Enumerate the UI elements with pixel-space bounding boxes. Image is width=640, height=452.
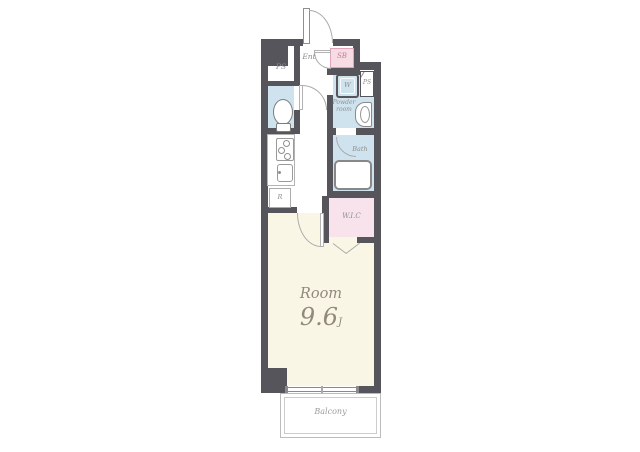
room-size-label: 9.6J: [268, 304, 374, 330]
wall-segment: [261, 39, 303, 46]
stove-burner-icon: [284, 153, 291, 160]
washer-label: W: [336, 82, 359, 89]
stove-burner-icon: [283, 140, 290, 147]
toilet-door-swing-arc: [302, 85, 327, 110]
pipe-space-right-label: PS: [360, 80, 374, 87]
wall-segment: [327, 128, 336, 135]
wall-segment: [374, 62, 381, 393]
toilet-base-icon: [276, 123, 291, 132]
basin-bowl-icon: [360, 106, 370, 123]
wic-label: W.I.C: [329, 213, 374, 221]
wall-segment: [294, 46, 300, 86]
wall-segment: [261, 81, 300, 86]
wall-segment: [357, 237, 381, 243]
window-end-cap: [285, 386, 288, 393]
wall-segment: [261, 39, 268, 393]
window-end-cap: [356, 386, 359, 393]
bathtub-icon: [334, 160, 372, 190]
room-size-unit: J: [338, 317, 342, 328]
powder-room-label-line2: room: [332, 107, 356, 114]
room-label: Room: [268, 287, 374, 303]
stove-burner-icon: [278, 147, 285, 154]
entrance-label: Ent: [298, 53, 320, 61]
structural-pillar: [261, 368, 287, 393]
bath-label: Bath: [348, 146, 372, 153]
room-size-value: 9.6: [300, 303, 338, 331]
wash-basin-icon: [355, 102, 372, 127]
entrance-door-swing-arc: [309, 10, 333, 43]
wall-segment: [356, 128, 381, 135]
toilet-bowl-icon: [273, 99, 293, 125]
floor-plan: SB PS Ent W PS Powder room Bath R W.I.C …: [0, 0, 640, 452]
wall-segment: [327, 191, 381, 198]
window-center-stile: [321, 386, 323, 393]
balcony-label: Balcony: [280, 408, 381, 417]
shoe-box-label: SB: [330, 53, 354, 61]
faucet-icon: [278, 171, 281, 174]
pipe-space-left-label: PS: [268, 63, 294, 71]
refrigerator-label: R: [269, 194, 291, 201]
wall-segment: [357, 386, 381, 393]
